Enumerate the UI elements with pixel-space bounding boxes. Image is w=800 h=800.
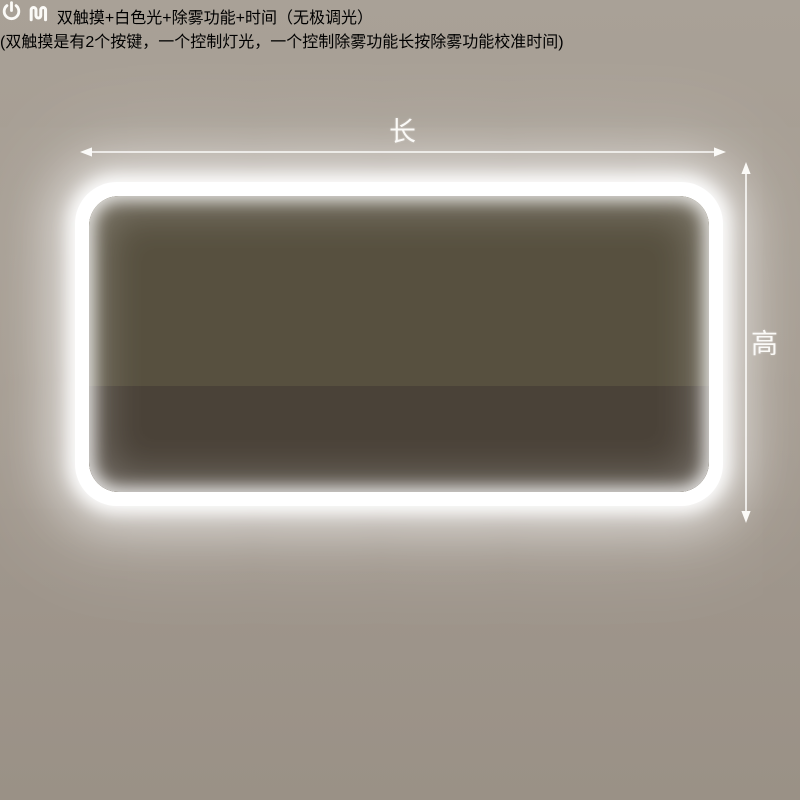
length-dimension-arrow — [78, 144, 728, 160]
power-icon — [0, 10, 27, 27]
reflected-ceiling — [89, 196, 709, 492]
feature-headline: 双触摸+白色光+除雾功能+时间（无极调光） — [57, 10, 373, 27]
mirror-reflection: 15:08 — [89, 196, 709, 492]
feature-subline: (双触摸是有2个按键，一个控制灯光，一个控制除雾功能长按除雾功能校准时间) — [0, 28, 800, 52]
feature-row: 双触摸+白色光+除雾功能+时间（无极调光） — [0, 0, 800, 28]
defog-icon — [27, 10, 56, 27]
feature-panel: 双触摸+白色光+除雾功能+时间（无极调光） (双触摸是有2个按键，一个控制灯光，… — [0, 0, 800, 52]
product-image: 长 高 — [0, 0, 800, 800]
led-mirror: 15:08 — [75, 182, 723, 506]
height-dimension-arrow — [738, 160, 754, 525]
height-dimension-label: 高 — [751, 322, 779, 361]
